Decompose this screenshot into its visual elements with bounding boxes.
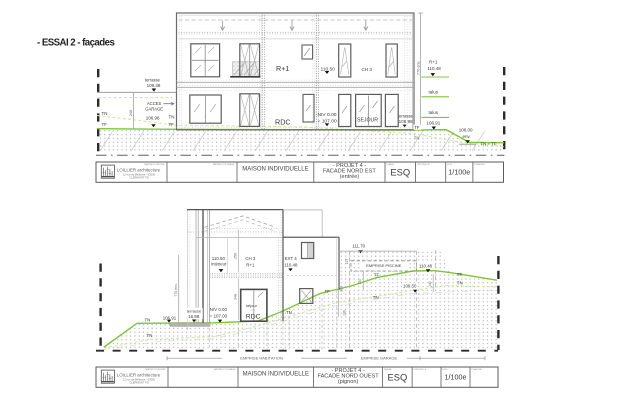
svg-text:140: 140 (428, 281, 432, 287)
svg-text:220: 220 (340, 286, 344, 292)
svg-text:TN: TN (286, 310, 292, 315)
svg-text:CH 3: CH 3 (362, 67, 373, 72)
svg-text:PHASE: PHASE (384, 368, 392, 371)
svg-text:1/100e: 1/100e (448, 168, 470, 177)
svg-text:- ESSAI 2 - façades: - ESSAI 2 - façades (37, 37, 114, 48)
svg-text:TN: TN (102, 111, 108, 116)
svg-text:env.: env. (463, 134, 471, 139)
svg-text:348: 348 (234, 294, 238, 300)
svg-text:TF: TF (325, 289, 331, 294)
svg-text:talus: talus (429, 89, 439, 94)
svg-text:RDC: RDC (275, 117, 291, 126)
svg-text:(pignon): (pignon) (338, 379, 359, 385)
svg-text:EMPRISE PISCINE: EMPRISE PISCINE (366, 263, 401, 268)
svg-text:LOILLIER architecture: LOILLIER architecture (117, 167, 161, 172)
svg-text:TF: TF (374, 272, 380, 277)
svg-text:1/100e: 1/100e (445, 373, 467, 382)
svg-text:110.50: 110.50 (212, 256, 226, 261)
svg-text:MAITRE D'OUVRAGE: MAITRE D'OUVRAGE (213, 163, 235, 166)
svg-text:TN: TN (145, 318, 151, 323)
svg-text:127: 127 (345, 259, 349, 265)
svg-text:770 env.: 770 env. (174, 283, 178, 297)
svg-text:106.98: 106.98 (146, 115, 160, 120)
svg-text:= 107.00: = 107.00 (210, 313, 228, 318)
svg-text:(entrée): (entrée) (340, 174, 360, 180)
svg-text:↔: ↔ (250, 307, 254, 311)
svg-text:talus: talus (429, 110, 439, 115)
svg-text:TF: TF (414, 125, 420, 130)
svg-text:LOILLIER architecture: LOILLIER architecture (117, 372, 161, 377)
svg-text:TN: TN (414, 135, 420, 140)
svg-text:↔: ↔ (204, 115, 207, 119)
svg-text:TN: TN (147, 333, 153, 338)
svg-text:MAISON INDIVIDUELLE: MAISON INDIVIDUELLE (243, 371, 309, 377)
svg-text:NIV 0.00: NIV 0.00 (210, 307, 228, 312)
svg-text:MAITRE D'OEUVRE: MAITRE D'OEUVRE (144, 163, 165, 166)
svg-text:CH 3: CH 3 (245, 256, 256, 261)
svg-text:R+1: R+1 (246, 262, 255, 267)
svg-text:PLANCHE: PLANCHE (474, 163, 485, 166)
svg-text:TF: TF (102, 122, 108, 127)
svg-text:110.48: 110.48 (427, 66, 441, 71)
svg-text:110.48: 110.48 (284, 263, 298, 268)
svg-text:CLERMONT FD: CLERMONT FD (129, 175, 148, 179)
svg-text:ESQ: ESQ (390, 167, 410, 178)
svg-text:PHASE: PHASE (387, 163, 395, 166)
svg-text:250: 250 (234, 253, 238, 259)
svg-text:R+1: R+1 (276, 64, 289, 73)
svg-text:R+1: R+1 (429, 60, 438, 65)
svg-text:130: 130 (358, 279, 362, 285)
svg-text:240: 240 (129, 110, 133, 116)
svg-text:109.50: 109.50 (403, 284, 417, 289)
svg-text:16.98: 16.98 (188, 314, 200, 319)
svg-text:RDC: RDC (246, 314, 261, 321)
svg-text:ECH.: ECH. (447, 164, 453, 166)
svg-text:136: 136 (342, 310, 346, 316)
svg-text:SEJOUR: SEJOUR (357, 118, 378, 124)
svg-text:TN = TF: TN = TF (481, 142, 497, 147)
svg-text:ECH.: ECH. (443, 369, 449, 371)
svg-text:↔: ↔ (203, 59, 206, 63)
svg-text:TF: TF (169, 122, 175, 127)
svg-text:110.48: 110.48 (419, 263, 433, 268)
svg-text:NIV 0.00: NIV 0.00 (318, 112, 337, 118)
svg-text:EMPRISE HABITATION: EMPRISE HABITATION (240, 356, 283, 361)
svg-text:106.91: 106.91 (427, 120, 441, 125)
svg-text:106.98: 106.98 (399, 119, 413, 124)
svg-text:DIFFUSE LE: DIFFUSE LE (414, 369, 427, 371)
svg-text:ESQ: ESQ (387, 372, 407, 383)
svg-text:intérieur: intérieur (211, 262, 227, 267)
svg-text:MAISON INDIVIDUELLE: MAISON INDIVIDUELLE (242, 166, 308, 172)
svg-text:EMPRISE GARAGE: EMPRISE GARAGE (361, 356, 398, 361)
svg-text:PLANCHE: PLANCHE (472, 368, 483, 371)
svg-text:TF: TF (457, 272, 463, 277)
svg-text:terrasse: terrasse (187, 308, 202, 313)
svg-text:106.91: 106.91 (163, 316, 177, 321)
svg-text:111.70: 111.70 (352, 243, 365, 248)
svg-text:MAITRE D'OUVRAGE: MAITRE D'OUVRAGE (214, 368, 236, 371)
svg-text:CLERMONT FD: CLERMONT FD (129, 380, 148, 384)
svg-text:↔: ↔ (367, 112, 370, 116)
svg-text:TN: TN (373, 295, 379, 300)
svg-text:DIFFUSE LE: DIFFUSE LE (417, 164, 430, 166)
svg-text:terrasse: terrasse (398, 113, 414, 118)
svg-text:ACCES: ACCES (147, 101, 162, 106)
svg-text:MAITRE D'OEUVRE: MAITRE D'OEUVRE (145, 368, 166, 371)
svg-text:106.00: 106.00 (459, 127, 473, 132)
svg-text:GARAGE: GARAGE (145, 107, 163, 112)
svg-text:TN: TN (169, 115, 175, 120)
svg-text:109.38: 109.38 (147, 83, 161, 88)
svg-text:TN: TN (457, 281, 463, 286)
svg-text:770 env.: 770 env. (416, 61, 420, 75)
svg-text:terrasse: terrasse (145, 77, 161, 82)
svg-text:EXT 4: EXT 4 (285, 256, 298, 261)
